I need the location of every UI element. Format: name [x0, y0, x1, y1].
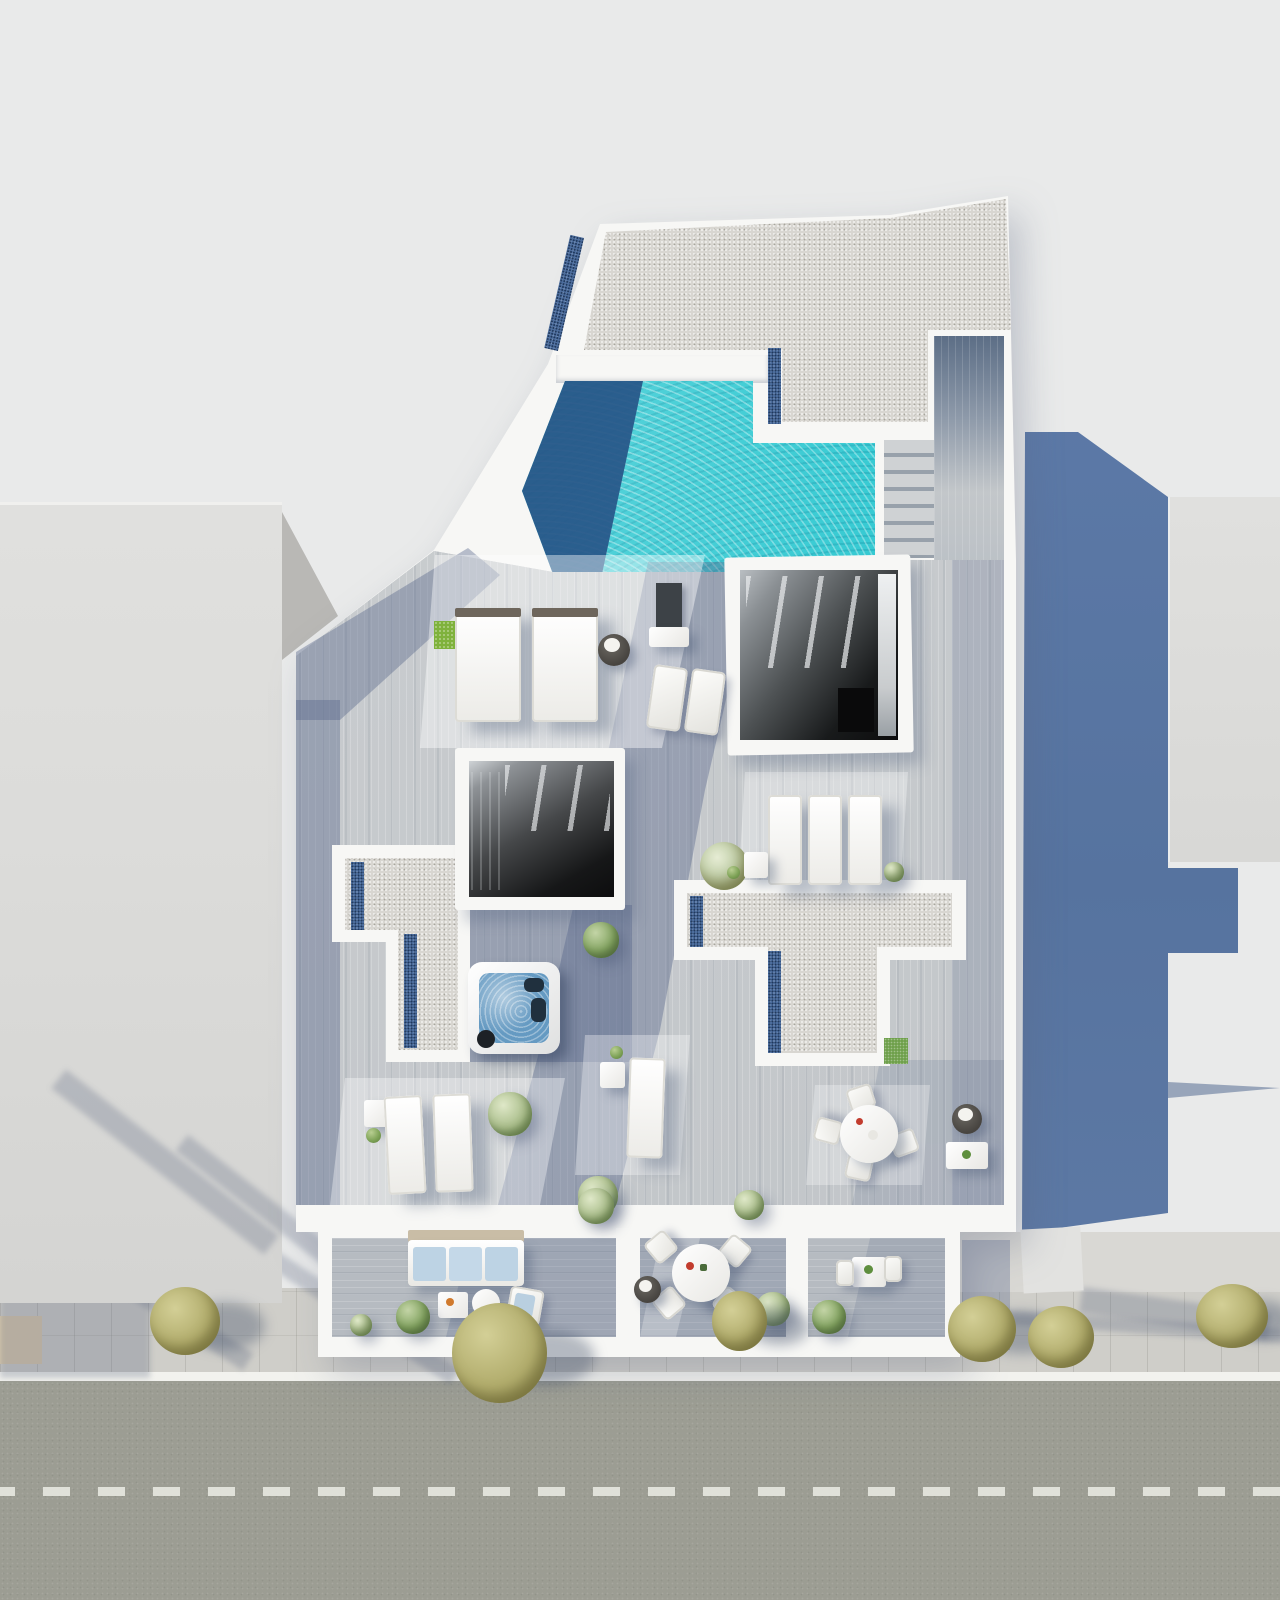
drainage-strip-top [768, 348, 781, 424]
bush [812, 1300, 846, 1334]
pool-stairs [884, 440, 934, 558]
grass-patch [884, 1038, 908, 1064]
side-table [744, 852, 768, 878]
bush [583, 922, 619, 958]
bush [578, 1188, 614, 1224]
shower-panel [656, 583, 682, 627]
plant-pot [610, 1046, 623, 1059]
sun-lounger [768, 795, 802, 885]
bush [350, 1314, 372, 1336]
sun-lounger [848, 795, 882, 885]
plant-pot [727, 866, 740, 879]
sun-lounger [432, 1093, 473, 1192]
bush [884, 862, 904, 882]
street-tree [1028, 1306, 1094, 1368]
aerial-render [0, 0, 1280, 1600]
street-tree [712, 1291, 767, 1351]
terrace-tree [700, 842, 748, 890]
round-dining-table [672, 1244, 730, 1302]
street-tree [452, 1303, 547, 1403]
street-tree [948, 1296, 1016, 1362]
side-table [600, 1062, 625, 1088]
sun-lounger [808, 795, 842, 885]
sun-lounger [383, 1095, 426, 1195]
day-bed [455, 608, 521, 722]
sun-lounger [626, 1057, 665, 1158]
coffee-table [438, 1292, 468, 1318]
street-tree [150, 1287, 220, 1355]
bush [734, 1190, 764, 1220]
plant-pot [366, 1128, 381, 1143]
bush [488, 1092, 532, 1136]
day-bed [532, 608, 598, 722]
bush [396, 1300, 430, 1334]
street-tree [1196, 1284, 1268, 1348]
